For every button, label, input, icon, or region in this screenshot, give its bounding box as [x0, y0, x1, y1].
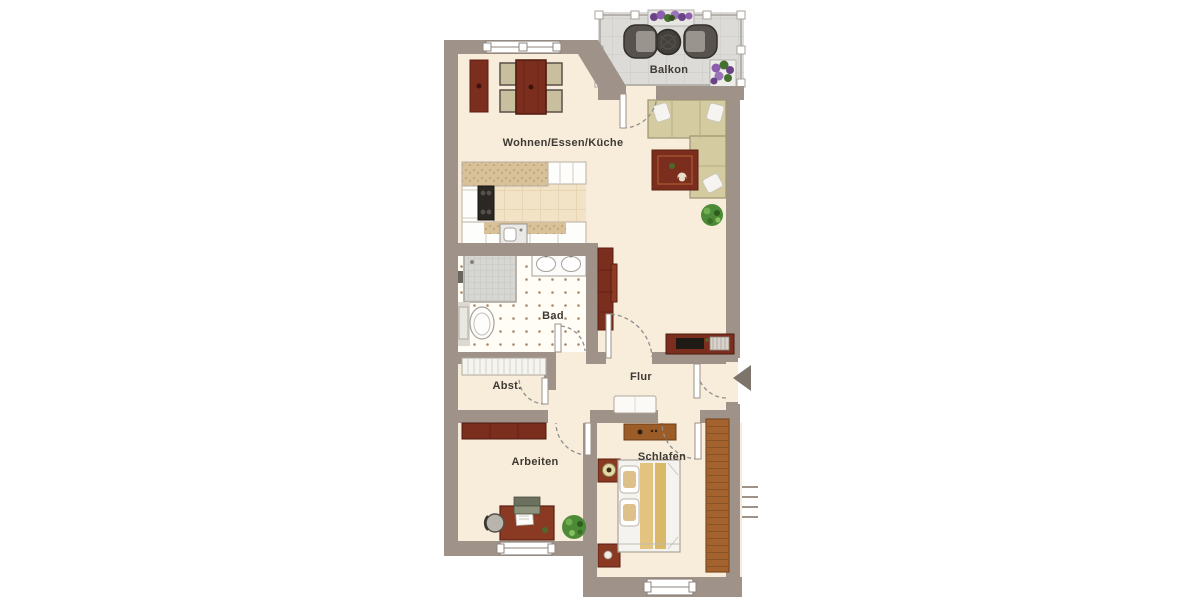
rug [652, 150, 698, 190]
room-label-bad: Bad [542, 310, 564, 322]
balcony-table [656, 30, 681, 55]
blanket [655, 463, 666, 549]
balcony-chair-right [684, 25, 717, 58]
room-label-wohnen: Wohnen/Essen/Küche [503, 137, 624, 149]
wall-bath-east [586, 243, 598, 364]
tv-lowboard [666, 334, 734, 354]
office-sideboard [462, 423, 546, 439]
kitchen-sink [500, 224, 527, 244]
room-label-balkon: Balkon [650, 64, 688, 76]
room-label-arbeiten: Arbeiten [511, 456, 558, 468]
desk-chair [485, 514, 504, 532]
double-bed [618, 460, 680, 552]
bath-door-leaf [555, 324, 561, 352]
entrance-door-leaf [694, 364, 700, 398]
balcony-chair-left [624, 25, 657, 58]
room-label-flur: Flur [630, 371, 652, 383]
bathroom [458, 252, 586, 352]
laptop [514, 497, 540, 506]
room-label-abst: Abst. [493, 380, 522, 392]
window-arbeiten [497, 542, 555, 555]
wardrobe [706, 419, 729, 572]
nightstand-top [598, 459, 620, 482]
towel-radiator [458, 271, 463, 283]
blanket [640, 463, 653, 549]
window-living [483, 41, 561, 53]
room-label-schlafen: Schlafen [638, 451, 686, 463]
window-schlafen [644, 579, 696, 595]
desk-plant [542, 527, 548, 533]
balcony-door-leaf [620, 94, 626, 128]
stove [478, 186, 494, 220]
plant [701, 204, 723, 226]
dresser [624, 424, 676, 440]
stair-ticks [742, 487, 758, 517]
wall-left [444, 40, 458, 556]
balcony-flower-box [648, 10, 694, 26]
abst-door-leaf [542, 378, 548, 404]
wall-kitchen-bath [444, 243, 598, 256]
floor-plant [562, 515, 586, 539]
shower [464, 254, 516, 302]
living-flur-door-leaf [606, 314, 611, 358]
arbeiten-door-leaf [585, 423, 591, 455]
nightstand-bottom [598, 544, 620, 567]
floorplan-graphic [0, 0, 1200, 600]
kitchen [462, 162, 586, 245]
floorplan-canvas: Balkon Wohnen/Essen/Küche Bad Abst. Flur… [0, 0, 1200, 600]
flur-cabinet [614, 396, 656, 413]
kitchen-counter-top-right [548, 162, 586, 184]
schlafen-door-leaf [695, 423, 701, 459]
wall-right-upper [726, 86, 740, 362]
balcony-flower-pot [710, 60, 736, 87]
